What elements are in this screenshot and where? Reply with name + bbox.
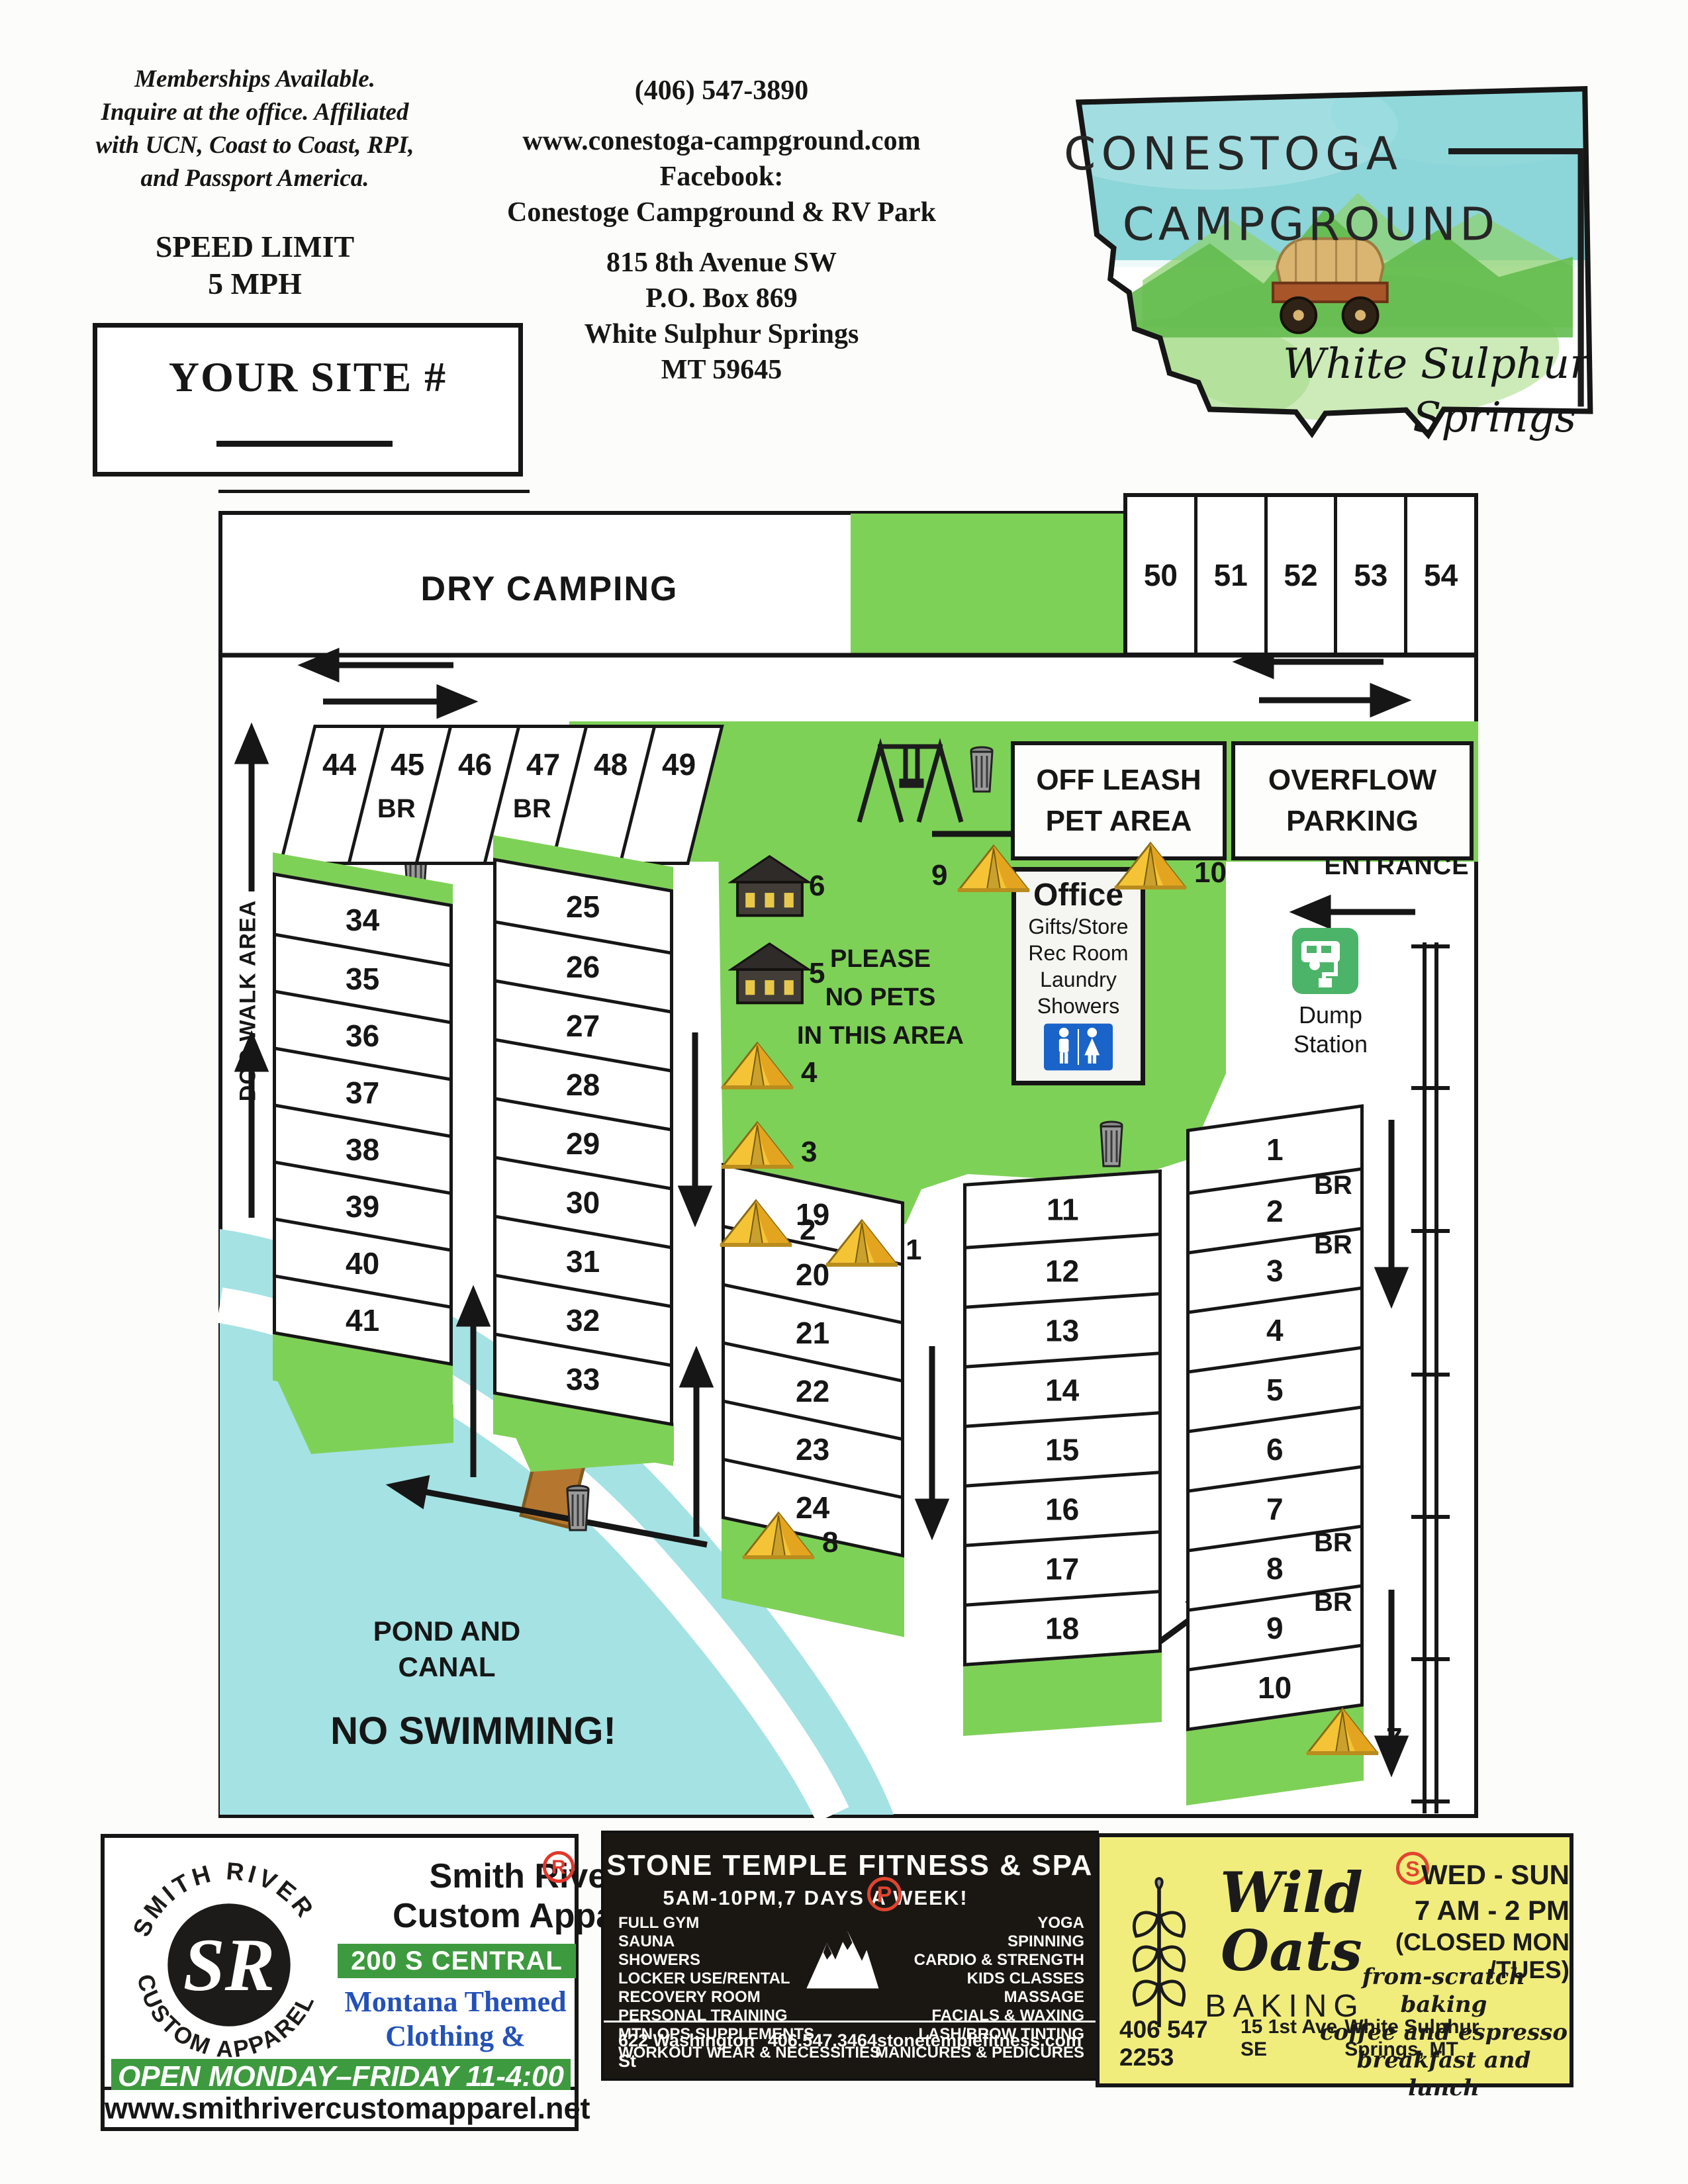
pond-label: POND ANDCANAL bbox=[318, 1614, 576, 1685]
memberships-line: Inquire at the office. Affiliated bbox=[63, 96, 447, 129]
stone-temple-ad: STONE TEMPLE FITNESS & SPA 5AM-10PM,7 DA… bbox=[601, 1831, 1099, 2081]
wild-schedule: WED - SUN7 AM - 2 PM bbox=[1351, 1857, 1570, 1929]
logo-script-line2: Springs bbox=[1413, 393, 1576, 441]
cabin-site-6: 6 bbox=[728, 852, 812, 920]
speed-limit-sign: SPEED LIMIT5 MPH bbox=[63, 228, 447, 302]
tent-icon bbox=[720, 1118, 794, 1170]
memberships-line: Memberships Available. bbox=[63, 63, 447, 96]
dry-camping-label: DRY CAMPING bbox=[417, 569, 682, 609]
site-cell: 53 bbox=[1334, 497, 1404, 653]
office-service: Laundry bbox=[1016, 966, 1141, 993]
tent-icon bbox=[719, 1197, 793, 1248]
cabin-icon bbox=[728, 852, 812, 920]
stone-website: stonetemplefitness.com bbox=[877, 2030, 1082, 2071]
logo-name-line1: CONESTOGA bbox=[1064, 128, 1403, 181]
contact-block: (406) 547-3890 www.conestoga-campground.… bbox=[503, 73, 940, 388]
map-top-line-artifact bbox=[218, 490, 530, 493]
tent-site-1: 1 bbox=[825, 1216, 899, 1269]
sites-50-54: 5051525354 bbox=[1123, 493, 1478, 657]
stone-contact-row: 622 Washington St 406.547.3464 stonetemp… bbox=[604, 2021, 1096, 2071]
site-cell: 54 bbox=[1404, 497, 1474, 653]
sites-column-34-41: 3435363738394041 bbox=[273, 852, 453, 1412]
wild-address: 15 1st Ave SE bbox=[1241, 2016, 1344, 2071]
overflow-line: PARKING bbox=[1286, 801, 1419, 842]
phone-number: (406) 547-3890 bbox=[503, 73, 940, 109]
dump-station-icon bbox=[1292, 928, 1358, 994]
smith-website-bar: www.smithrivercustomapparel.net bbox=[101, 2090, 579, 2131]
site-cell: 50 bbox=[1127, 497, 1194, 653]
cabin-site-5: 5 bbox=[728, 940, 812, 1007]
overflow-line: OVERFLOW bbox=[1268, 760, 1436, 801]
memberships-line: with UCN, Coast to Coast, RPI, bbox=[63, 129, 447, 162]
office-service: Rec Room bbox=[1016, 940, 1141, 966]
svg-text:SR: SR bbox=[183, 1923, 275, 2007]
no-swimming-label: NO SWIMMING! bbox=[278, 1709, 669, 1753]
memberships-line: and Passport America. bbox=[63, 162, 447, 195]
tent-icon bbox=[1113, 839, 1188, 891]
site-cell: 51 bbox=[1194, 497, 1264, 653]
wild-oats-ad: WildOats BAKING S WED - SUN7 AM - 2 PM (… bbox=[1096, 1833, 1573, 2087]
smith-hours-band: OPEN MONDAY–FRIDAY 11-4:00 bbox=[111, 2059, 571, 2095]
wild-phone: 406 547 2253 bbox=[1119, 2016, 1241, 2071]
tent-site-3: 3 bbox=[720, 1118, 794, 1171]
dry-strip-green bbox=[851, 514, 1123, 655]
address-line: 815 8th Avenue SW bbox=[503, 245, 940, 281]
parking-badge-icon: P bbox=[867, 1877, 902, 1911]
off-leash-line: PET AREA bbox=[1046, 801, 1192, 842]
dump-station-label: DumpStation bbox=[1274, 1001, 1387, 1059]
sites-column-11-18: 1112131415161718 bbox=[963, 1169, 1162, 1736]
stone-address: 622 Washington St bbox=[618, 2030, 768, 2071]
tent-icon bbox=[720, 1039, 794, 1091]
fence bbox=[1411, 942, 1450, 1813]
tent-icon bbox=[957, 842, 1031, 893]
site-cell: 52 bbox=[1264, 497, 1335, 653]
logo-name-line2: CAMPGROUND bbox=[1123, 199, 1499, 251]
address-line: P.O. Box 869 bbox=[503, 281, 940, 316]
stone-phone: 406.547.3464 bbox=[768, 2030, 877, 2071]
cabin-icon bbox=[728, 940, 812, 1007]
stone-hours: 5AM-10PM,7 DAYS A WEEK! bbox=[643, 1886, 988, 1910]
facebook-page: Conestoge Campground & RV Park bbox=[503, 195, 940, 230]
speed-limit-line: 5 MPH bbox=[63, 265, 447, 302]
tent-site-9: 9 bbox=[957, 842, 1031, 895]
sites-column-1-10: 1 2 BR 3 BR 4 5 6 7 8 BR bbox=[1186, 1104, 1364, 1805]
office-service: Showers bbox=[1016, 993, 1141, 1019]
logo-script-line1: White Sulphur bbox=[1283, 340, 1592, 388]
tent-site-8: 8 bbox=[741, 1509, 816, 1562]
campground-flyer: Memberships Available.Inquire at the off… bbox=[0, 0, 1688, 2184]
tent-icon bbox=[1305, 1705, 1380, 1756]
office-box: Office Gifts/StoreRec RoomLaundryShowers bbox=[1011, 867, 1145, 1085]
sites-column-25-33: 252627282930313233 bbox=[493, 835, 673, 1466]
address-line: White Sulphur Springs bbox=[503, 316, 940, 352]
restroom-icon bbox=[1044, 1023, 1113, 1071]
address-line: MT 59645 bbox=[503, 352, 940, 388]
facebook-label: Facebook: bbox=[503, 159, 940, 195]
smith-river-logo: SMITH RIVER CUSTOM APPAREL SR bbox=[117, 1852, 342, 2077]
tent-site-7: 7 bbox=[1305, 1705, 1380, 1758]
tent-site-10: 10 bbox=[1113, 839, 1188, 892]
tent-icon bbox=[741, 1509, 816, 1561]
site-row: 18 bbox=[966, 1590, 1158, 1662]
wild-city: White Sulphur Springs, MT bbox=[1344, 2016, 1550, 2071]
wild-contact-row: 406 547 2253 15 1st Ave SE White Sulphur… bbox=[1100, 2016, 1570, 2071]
website: www.conestoga-campground.com bbox=[503, 123, 940, 159]
off-leash-line: OFF LEASH bbox=[1036, 760, 1201, 801]
site-number-blank-line bbox=[216, 441, 393, 447]
tent-icon bbox=[825, 1216, 899, 1268]
smith-address-band: 200 S CENTRAL AVE bbox=[338, 1944, 576, 1978]
entrance-label: ENTRANCE bbox=[1321, 852, 1473, 881]
your-site-label: YOUR SITE # bbox=[97, 353, 518, 402]
dog-walk-area-label: DOG WALK AREA bbox=[233, 875, 263, 1126]
campground-logo: CONESTOGA CAMPGROUND White Sulphur Sprin… bbox=[1006, 38, 1622, 475]
mountain-logo-icon bbox=[802, 1926, 882, 1992]
registered-trademark-icon: R bbox=[543, 1851, 575, 1883]
speed-limit-line: SPEED LIMIT bbox=[63, 228, 447, 265]
smith-river-ad: SMITH RIVER CUSTOM APPAREL SR Smith Rive… bbox=[101, 1834, 579, 2091]
stone-title: STONE TEMPLE FITNESS & SPA bbox=[604, 1849, 1096, 1882]
memberships-note: Memberships Available.Inquire at the off… bbox=[63, 63, 447, 195]
tent-site-2: 2 bbox=[719, 1197, 793, 1250]
overflow-parking: OVERFLOWPARKING bbox=[1231, 741, 1474, 860]
your-site-number-box: YOUR SITE # bbox=[93, 323, 523, 477]
tent-site-4: 4 bbox=[720, 1039, 794, 1092]
office-service: Gifts/Store bbox=[1016, 913, 1141, 940]
